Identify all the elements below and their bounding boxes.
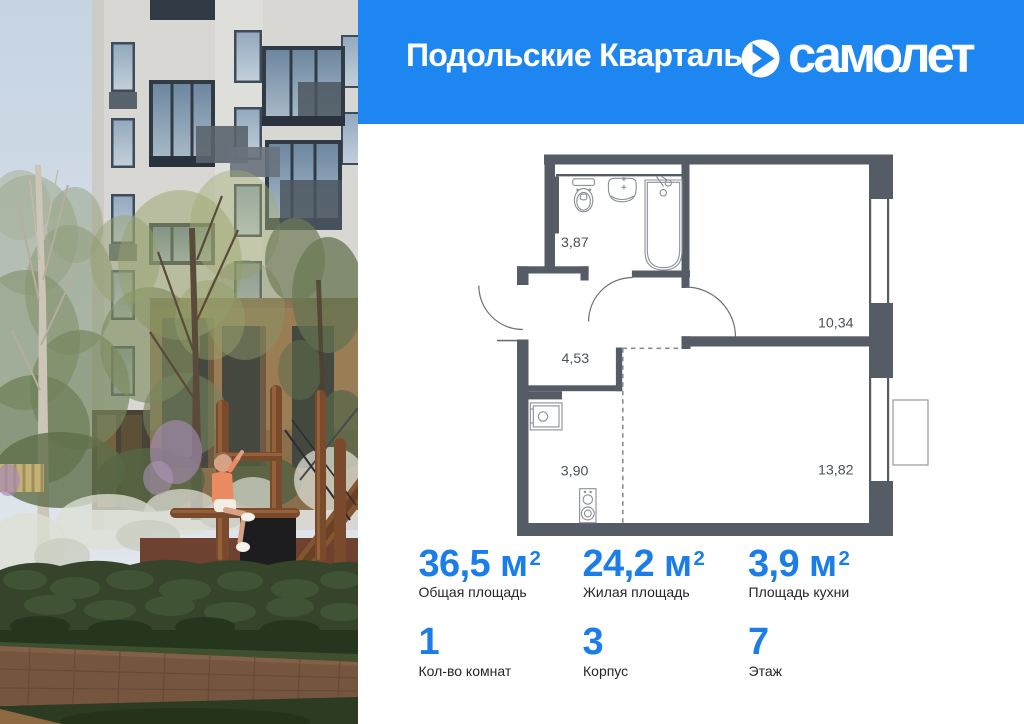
svg-text:3,87: 3,87 xyxy=(561,235,589,251)
svg-text:13,82: 13,82 xyxy=(818,463,854,479)
svg-text:3,90: 3,90 xyxy=(561,464,589,480)
svg-text:10,34: 10,34 xyxy=(818,316,854,332)
svg-text:4,53: 4,53 xyxy=(562,351,590,367)
